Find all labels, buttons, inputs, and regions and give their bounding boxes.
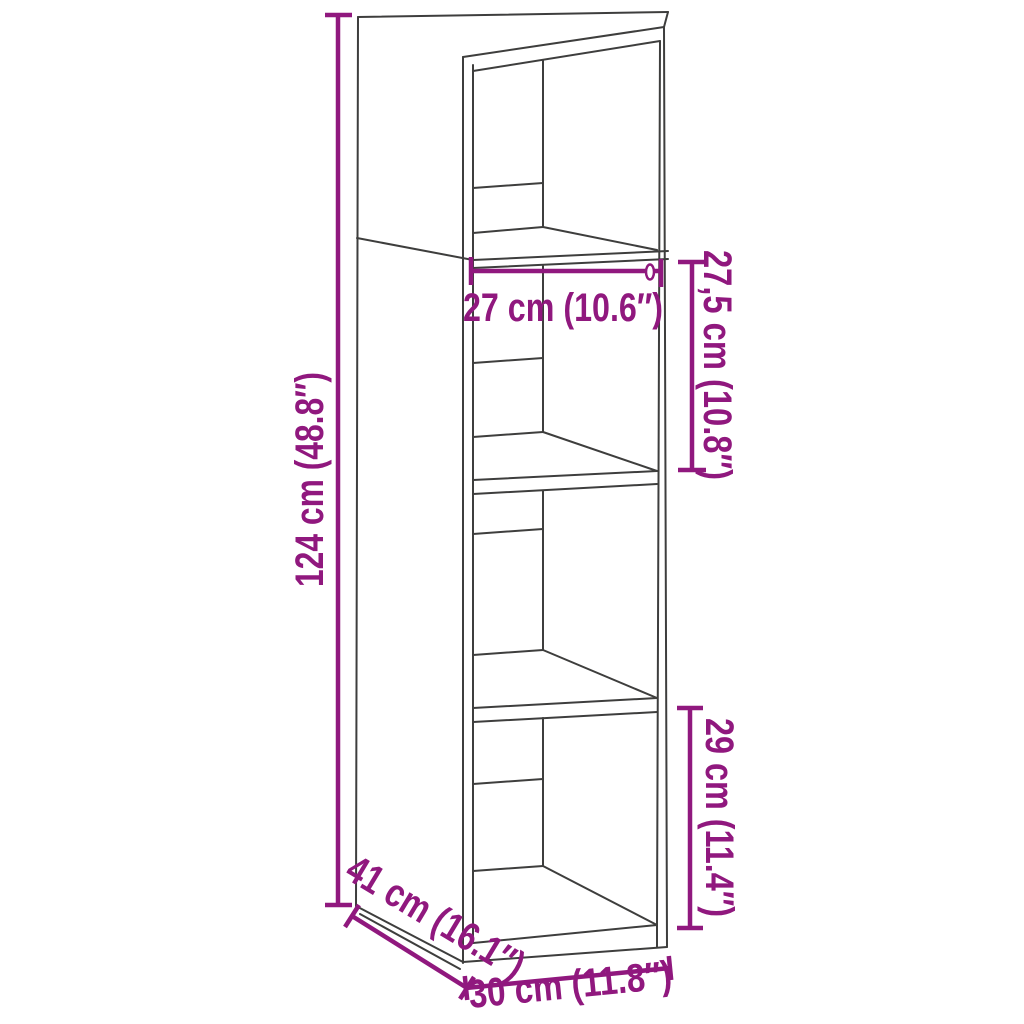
shelf-a-front-bottom-edge [473, 484, 657, 494]
cabinet-unit-joint-line [357, 238, 473, 260]
height-dimension-label: 124 cm (48.8″) [288, 372, 332, 587]
top-box-back-panel-line [473, 183, 543, 188]
floor-back-edge [473, 866, 543, 871]
cabinet-top-right-edge [664, 12, 668, 27]
compartment4-back-panel-line [473, 779, 543, 784]
dimension-upper-inner-height: 27,5 cm (10.8″) [678, 250, 739, 480]
dimension-height: 124 cm (48.8″) [288, 15, 352, 905]
diagram-canvas: 124 cm (48.8″) 27 cm (10.6″) 27,5 cm (10… [0, 0, 1024, 1024]
shelf-a-right-edge [543, 432, 657, 471]
compartment2-back-panel-line [473, 358, 543, 363]
upper-inner-height-label: 27,5 cm (10.8″) [695, 250, 739, 480]
top-box-floor-back-edge [473, 227, 543, 233]
shelf-b-front-bottom-edge [473, 712, 657, 722]
cabinet-front-right-outer-edge [664, 27, 667, 947]
shelf-b-front-top-edge [473, 698, 657, 708]
dimension-diagram: 124 cm (48.8″) 27 cm (10.6″) 27,5 cm (10… [0, 0, 1024, 1024]
shelf-a-back-edge [473, 432, 543, 437]
inner-width-dimension-label: 27 cm (10.6″) [463, 286, 663, 330]
top-box-floor-right-edge [543, 227, 657, 250]
compartment3-back-panel-line [473, 529, 543, 534]
lower-inner-height-label: 29 cm (11.4″) [697, 718, 741, 917]
divider-front-top-edge [473, 251, 668, 260]
divider-front-bottom-edge [473, 259, 668, 268]
cabinet-top-back-edge [358, 12, 668, 17]
cam-hole-mark [646, 265, 654, 280]
cabinet-top-front-inner-edge [473, 41, 660, 71]
cabinet-line-drawing [356, 12, 668, 969]
shelf-a-front-top-edge [473, 471, 657, 480]
shelf-b-right-edge [543, 650, 657, 698]
cabinet-front-right-inner-edge [657, 41, 660, 925]
cabinet-back-left-edge [356, 17, 358, 906]
depth-cap-back [345, 905, 359, 927]
shelf-b-back-edge [473, 650, 543, 655]
cabinet-top-front-edge [463, 27, 664, 57]
dimension-lower-inner-height: 29 cm (11.4″) [677, 708, 741, 928]
floor-right-edge [543, 866, 657, 925]
